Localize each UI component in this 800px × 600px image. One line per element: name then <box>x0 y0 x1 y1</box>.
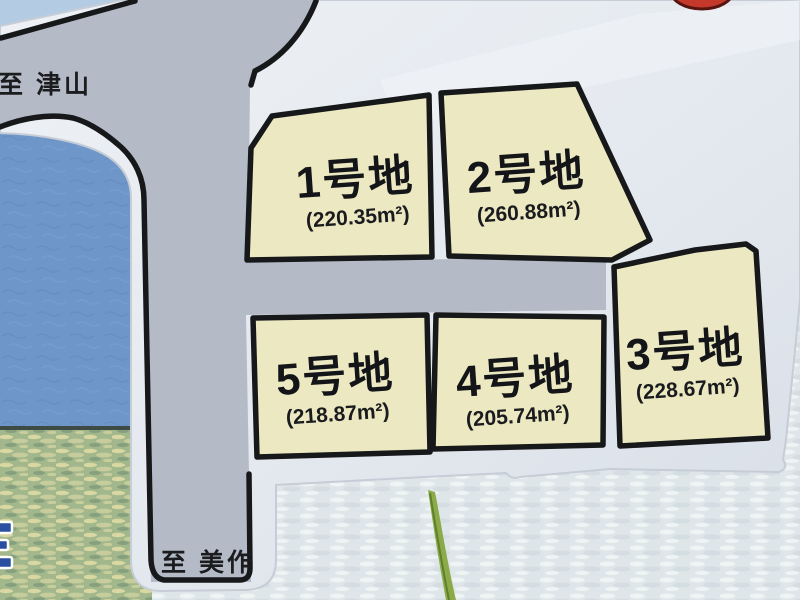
lot-2-name: 2号地 <box>465 149 586 201</box>
lot-5-label: 5号地 (218.87m²) <box>274 351 397 429</box>
lot-map-sign: 至 津山 至 美作 1号地 (220.35m²) 2号地 (260.88m²) … <box>0 0 800 600</box>
lot-1-label: 1号地 (220.35m²) <box>294 154 417 232</box>
lot-4-label: 4号地 (205.74m²) <box>454 353 577 431</box>
lot-3-label: 3号地 (228.67m²) <box>624 326 747 404</box>
background-field-green <box>0 430 152 600</box>
lot-map-drawing <box>0 0 800 600</box>
lot-4-name: 4号地 <box>454 353 575 405</box>
lot-1-name: 1号地 <box>294 154 415 206</box>
lot-3-name: 3号地 <box>624 326 745 378</box>
road-destination-tsuyama: 至 津山 <box>0 65 92 101</box>
lot-2-label: 2号地 (260.88m²) <box>465 149 588 227</box>
lot-5-name: 5号地 <box>274 351 395 403</box>
road-destination-mimasaka: 至 美作 <box>161 543 255 579</box>
